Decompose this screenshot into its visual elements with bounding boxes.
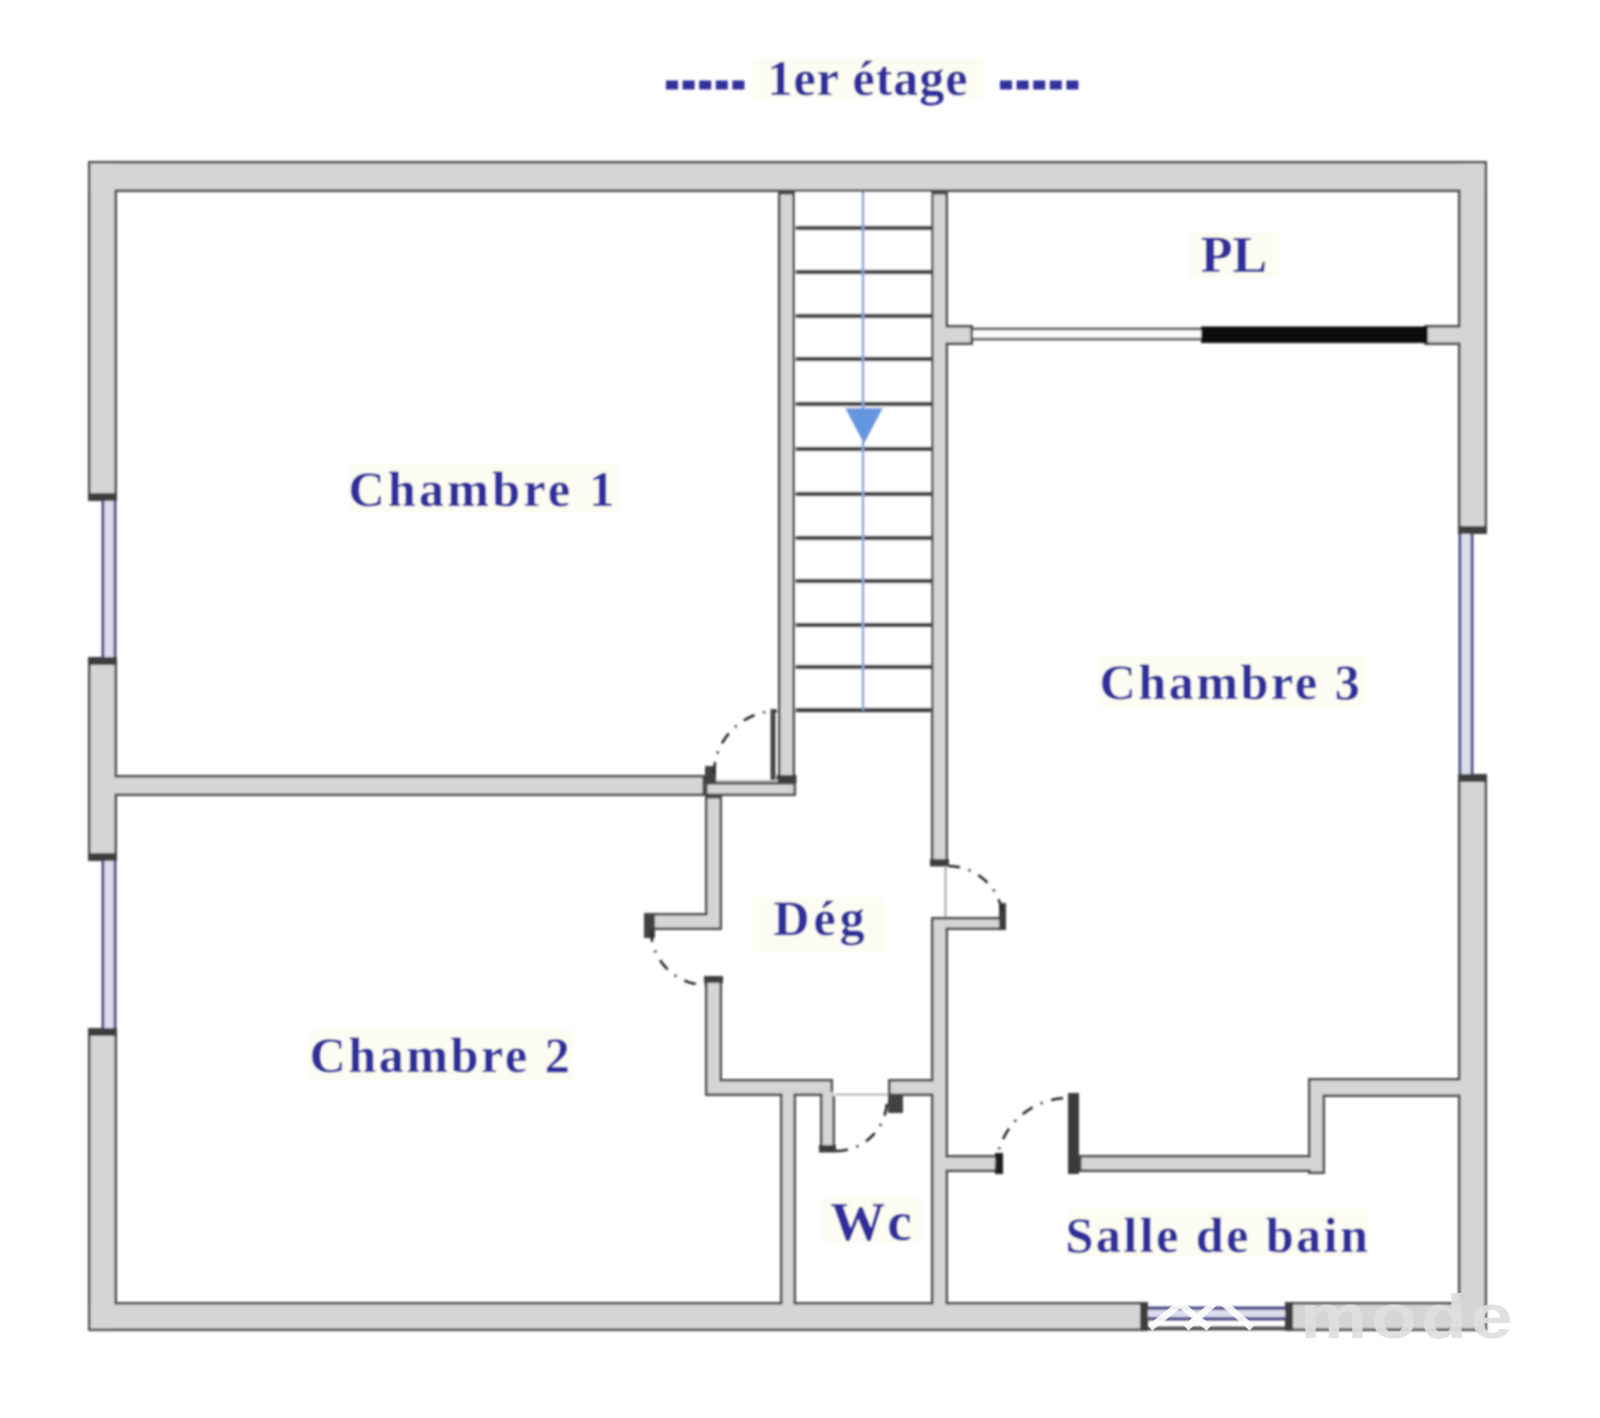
svg-text:Chambre 3: Chambre 3 [1100,654,1363,710]
svg-text:PL: PL [1201,227,1267,284]
svg-text:Salle de bain: Salle de bain [1066,1207,1371,1263]
svg-text:Chambre 1: Chambre 1 [348,461,617,517]
svg-text:Dég: Dég [773,890,868,946]
svg-text:Chambre 2: Chambre 2 [310,1027,573,1083]
svg-text:1er étage: 1er étage [767,50,968,106]
svg-text:Wc: Wc [830,1191,913,1252]
svg-text:mode: mode [1300,1282,1516,1352]
